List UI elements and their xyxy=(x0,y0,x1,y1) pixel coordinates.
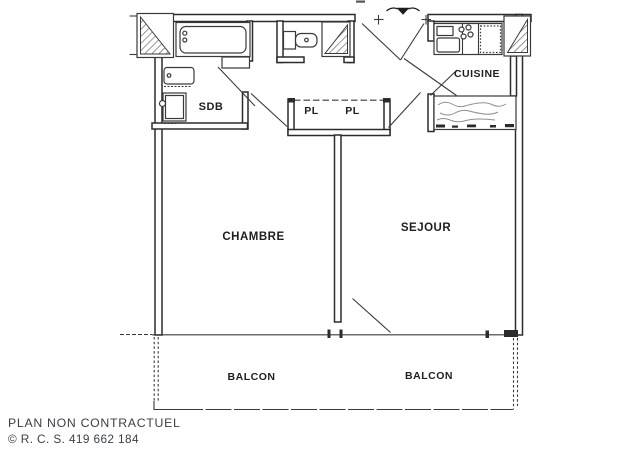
duct-hatch-top-right xyxy=(504,16,531,56)
rcs-registration-text: © R. C. S. 419 662 184 xyxy=(8,432,139,446)
room-label-balcon-left: BALCON xyxy=(228,371,276,383)
walls xyxy=(152,15,531,336)
duct-hatch-top-left xyxy=(130,14,174,58)
room-label-sejour: SEJOUR xyxy=(401,222,451,234)
room-label-pl-right: PL xyxy=(345,105,359,117)
room-label-balcon-right: BALCON xyxy=(405,370,453,382)
bathroom-sink-icon xyxy=(164,68,194,87)
kitchen-counter xyxy=(434,24,502,55)
closet-front xyxy=(288,98,390,103)
bathtub-icon xyxy=(176,23,250,69)
toilet-icon xyxy=(284,32,318,50)
duct-hatch-wc xyxy=(322,22,350,57)
balcony-wall-line xyxy=(120,330,518,339)
floorplan-linework xyxy=(0,0,640,456)
entrance-arrow-icon xyxy=(356,1,431,25)
room-label-chambre: CHAMBRE xyxy=(222,231,284,243)
room-label-pl-left: PL xyxy=(304,105,318,117)
kitchen-bar xyxy=(434,96,516,130)
floor-plan-page: SDB PL PL CUISINE CHAMBRE SEJOUR BALCON … xyxy=(0,0,640,456)
room-label-sdb: SDB xyxy=(199,101,224,113)
balcony-outline xyxy=(154,337,518,410)
disclaimer-text: PLAN NON CONTRACTUEL xyxy=(8,416,181,430)
washing-machine-icon xyxy=(160,93,187,124)
room-label-cuisine: CUISINE xyxy=(454,68,500,80)
